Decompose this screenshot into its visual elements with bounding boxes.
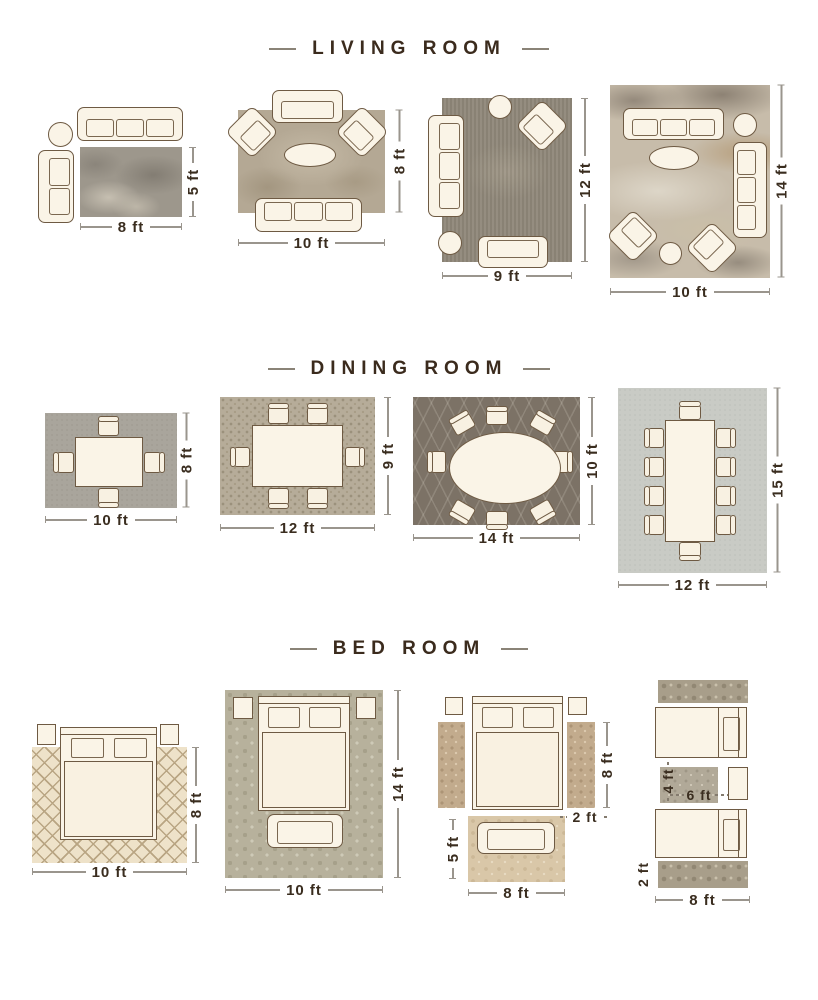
headboard-line	[61, 734, 156, 735]
sofa	[623, 108, 724, 140]
dim-height: 8 ft	[186, 747, 206, 863]
section-title-text: DINING ROOM	[311, 358, 508, 380]
dim-width: 9 ft	[442, 266, 572, 286]
dining-chair	[486, 410, 508, 425]
loveseat	[272, 90, 343, 123]
sofa-vertical	[428, 115, 464, 217]
dim-label: 12 ft	[577, 156, 594, 204]
dim-height: 15 ft	[768, 388, 788, 573]
dim-label: 6 ft	[684, 787, 715, 803]
dim-label: 8 ft	[599, 746, 616, 785]
bed	[258, 696, 350, 811]
dining-chair	[431, 451, 446, 473]
title-dash-left	[269, 48, 296, 50]
oval-coffee-table	[649, 146, 699, 170]
dim-label: 10 ft	[288, 235, 336, 252]
dim-label: 14 ft	[773, 157, 790, 205]
headboard-line	[738, 810, 739, 857]
seat-cushions	[737, 150, 756, 230]
dining-chair	[648, 486, 664, 506]
dim-label: 8 ft	[112, 219, 151, 236]
dim-height: 10 ft	[582, 397, 602, 525]
pillow	[309, 707, 341, 728]
dim-width: 10 ft	[225, 880, 383, 900]
loveseat-vertical	[38, 150, 74, 223]
dim-mid-rug-width: 6 ft	[670, 785, 728, 805]
pillow	[523, 707, 554, 728]
dim-label: 10 ft	[666, 284, 714, 301]
dining-chair	[144, 452, 161, 473]
section-title-text: BED ROOM	[333, 638, 486, 660]
dim-height: 12 ft	[575, 98, 595, 262]
dining-chair	[98, 420, 119, 436]
rug-size-guide: LIVING ROOM 8 ft 5 ft 8 ft 10 ft	[0, 0, 818, 1000]
nightstand	[568, 697, 587, 715]
runner-rug-8x2	[438, 722, 465, 808]
rug-8x5	[80, 147, 182, 217]
section-title-dining-room: DINING ROOM	[0, 358, 818, 380]
seat-cushions	[277, 821, 333, 844]
dim-height: 14 ft	[388, 690, 408, 878]
pillow	[71, 738, 104, 758]
bed-divider-line	[718, 708, 719, 757]
headboard-line	[738, 708, 739, 757]
dining-chair	[716, 457, 732, 477]
dim-label: 12 ft	[669, 577, 717, 594]
nightstand	[728, 767, 748, 800]
dim-label: 2 ft	[567, 809, 604, 825]
oval-dining-table	[449, 432, 561, 504]
dim-label: 10 ft	[280, 882, 328, 899]
dim-width: 10 ft	[32, 862, 187, 882]
dim-label: 12 ft	[274, 520, 322, 537]
twin-bed	[655, 707, 747, 758]
dining-chair	[648, 515, 664, 535]
dim-label: 8 ft	[683, 892, 722, 909]
seat-cushions	[632, 119, 715, 136]
dim-label: 8 ft	[178, 441, 195, 480]
dim-height: 9 ft	[378, 397, 398, 515]
dim-label: 10 ft	[86, 864, 134, 881]
dim-height: 14 ft	[772, 85, 792, 278]
title-dash-right	[501, 648, 528, 650]
round-side-table	[48, 122, 73, 147]
dim-label: 10 ft	[87, 512, 135, 529]
dining-table	[665, 420, 715, 542]
round-side-table	[733, 113, 757, 137]
title-dash-left	[290, 648, 317, 650]
dim-label: 5 ft	[185, 163, 202, 202]
dim-label: 8 ft	[391, 142, 408, 181]
pillow	[114, 738, 147, 758]
dim-foot-rug-width: 8 ft	[468, 883, 565, 903]
dim-height: 8 ft	[177, 413, 197, 508]
pillow	[482, 707, 513, 728]
nightstand	[37, 724, 56, 745]
seat-cushions	[439, 123, 460, 209]
dining-chair	[345, 447, 361, 467]
dining-chair	[486, 511, 508, 526]
dim-width: 10 ft	[45, 510, 177, 530]
headboard-line	[473, 703, 562, 704]
blanket	[476, 732, 559, 807]
bed-divider-line	[718, 810, 719, 857]
loveseat	[478, 236, 548, 268]
dim-label: 14 ft	[473, 530, 521, 547]
section-title-bed-room: BED ROOM	[0, 638, 818, 660]
dining-chair	[307, 407, 328, 424]
blanket	[262, 732, 346, 808]
dim-height: 8 ft	[390, 110, 410, 213]
dining-chair	[716, 428, 732, 448]
sofa-vertical	[733, 142, 767, 238]
bench	[477, 822, 555, 854]
nightstand	[445, 697, 463, 715]
dining-chair	[234, 447, 250, 467]
dim-runner-width: 2 ft	[560, 807, 610, 827]
round-side-table	[438, 231, 462, 255]
seat-cushions	[487, 829, 545, 850]
bench	[267, 814, 343, 848]
oval-coffee-table	[284, 143, 336, 167]
runner-rug-8x2	[567, 722, 595, 808]
dim-label: 8 ft	[188, 786, 205, 825]
bed	[472, 696, 563, 810]
dining-chair	[679, 542, 701, 557]
dim-label: 9 ft	[488, 268, 527, 285]
seat-cushions	[49, 158, 70, 215]
round-side-table	[659, 242, 682, 265]
dim-label: 10 ft	[584, 437, 601, 485]
nightstand	[356, 697, 376, 719]
dining-chair	[268, 407, 289, 424]
dining-chair	[57, 452, 74, 473]
dim-width: 10 ft	[238, 233, 385, 253]
dim-label: 9 ft	[380, 437, 397, 476]
section-title-living-room: LIVING ROOM	[0, 38, 818, 60]
sofa	[77, 107, 183, 141]
dim-label: 5 ft	[445, 830, 462, 869]
dining-chair	[716, 486, 732, 506]
dining-chair	[268, 488, 289, 505]
seat-cushions	[487, 240, 539, 258]
dining-table	[252, 425, 343, 487]
dining-chair	[648, 428, 664, 448]
dim-width: 12 ft	[618, 575, 767, 595]
dim-width: 8 ft	[80, 217, 182, 237]
nightstand	[160, 724, 179, 745]
seat-cushions	[281, 101, 334, 119]
runner-rug	[658, 680, 748, 703]
runner-rug-8x2	[658, 861, 748, 888]
dim-label: 2 ft	[635, 859, 651, 890]
seat-cushions	[86, 119, 174, 137]
dining-table	[75, 437, 143, 487]
dim-label: 14 ft	[390, 760, 407, 808]
dining-chair	[307, 488, 328, 505]
dim-width: 14 ft	[413, 528, 580, 548]
dim-label: 8 ft	[497, 885, 536, 902]
dining-chair	[679, 405, 701, 420]
dim-runner-height: 2 ft	[633, 860, 653, 890]
dining-chair	[98, 488, 119, 504]
dim-height: 5 ft	[183, 147, 203, 217]
title-dash-left	[268, 368, 295, 370]
seat-cushions	[264, 202, 353, 221]
dim-width: 12 ft	[220, 518, 375, 538]
bed	[60, 727, 157, 840]
round-side-table	[488, 95, 512, 119]
nightstand	[233, 697, 253, 719]
blanket	[64, 761, 153, 837]
title-dash-right	[522, 48, 549, 50]
section-title-text: LIVING ROOM	[312, 38, 506, 60]
dining-chair	[648, 457, 664, 477]
title-dash-right	[523, 368, 550, 370]
twin-bed	[655, 809, 747, 858]
dining-chair	[716, 515, 732, 535]
dim-foot-rug-height: 5 ft	[443, 819, 463, 879]
dim-width: 8 ft	[655, 890, 750, 910]
dim-width: 10 ft	[610, 282, 770, 302]
dim-runner-height: 8 ft	[597, 722, 617, 808]
dim-label: 15 ft	[769, 456, 786, 504]
headboard-line	[259, 703, 349, 704]
pillow	[268, 707, 300, 728]
sofa	[255, 198, 362, 232]
